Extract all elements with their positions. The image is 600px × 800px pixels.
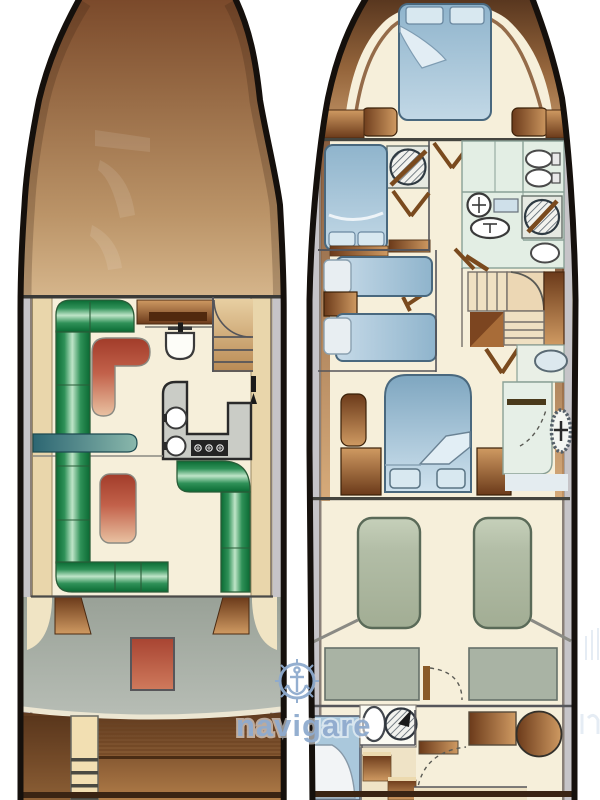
svg-text:navigare: navigare: [236, 708, 372, 743]
